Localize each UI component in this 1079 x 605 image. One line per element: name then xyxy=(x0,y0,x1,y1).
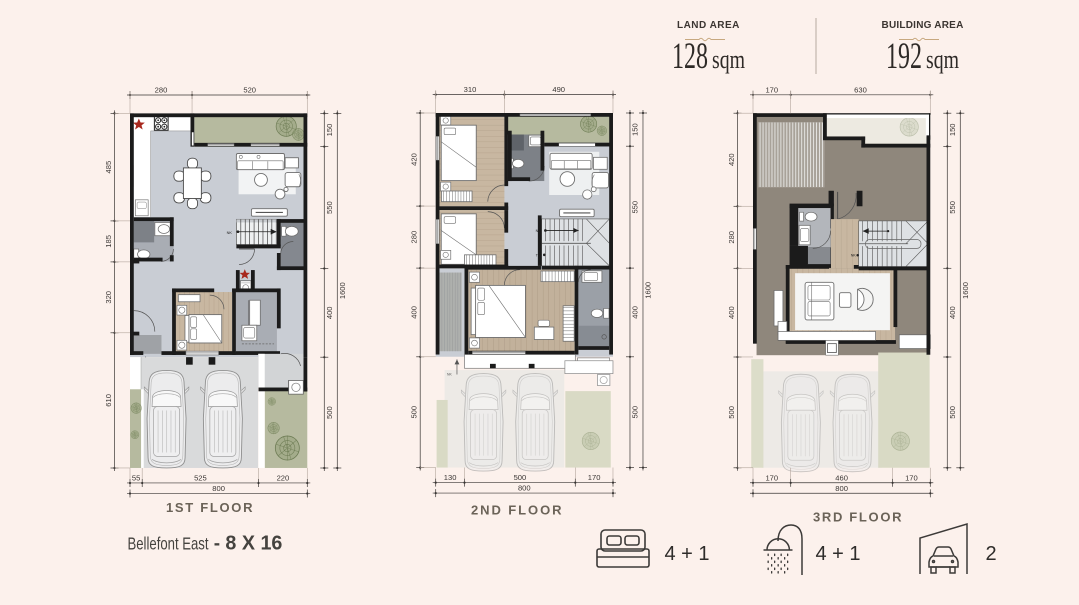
svg-text:3RD FLOOR: 3RD FLOOR xyxy=(813,510,903,525)
svg-text:550: 550 xyxy=(325,201,334,214)
svg-text:460: 460 xyxy=(835,473,848,482)
svg-text:310: 310 xyxy=(464,85,477,94)
svg-text:220: 220 xyxy=(277,474,290,483)
svg-text:170: 170 xyxy=(905,473,918,482)
svg-text:2ND FLOOR: 2ND FLOOR xyxy=(471,503,563,518)
svg-text:800: 800 xyxy=(835,484,848,493)
svg-text:2: 2 xyxy=(985,543,996,565)
svg-text:130: 130 xyxy=(444,473,457,482)
svg-text:610: 610 xyxy=(104,394,113,407)
svg-text:500: 500 xyxy=(948,406,957,419)
svg-text:280: 280 xyxy=(410,231,419,244)
svg-text:BUILDING AREA: BUILDING AREA xyxy=(882,20,965,31)
svg-text:4 + 1: 4 + 1 xyxy=(815,543,860,565)
svg-text:NK: NK xyxy=(851,253,857,257)
svg-text:1ST FLOOR: 1ST FLOOR xyxy=(166,500,254,515)
svg-text:490: 490 xyxy=(552,85,565,94)
svg-text:485: 485 xyxy=(104,161,113,174)
svg-text:1600: 1600 xyxy=(644,282,653,299)
svg-text:NK: NK xyxy=(227,231,233,235)
svg-text:800: 800 xyxy=(212,484,225,493)
svg-text:sqm: sqm xyxy=(926,45,959,74)
svg-text:128: 128 xyxy=(672,36,708,77)
svg-text:280: 280 xyxy=(727,231,736,244)
svg-text:170: 170 xyxy=(765,85,778,94)
svg-text:4 + 1: 4 + 1 xyxy=(664,543,709,565)
svg-text:420: 420 xyxy=(410,153,419,166)
svg-text:500: 500 xyxy=(631,406,640,419)
svg-text:420: 420 xyxy=(727,153,736,166)
svg-text:500: 500 xyxy=(514,473,527,482)
svg-text:525: 525 xyxy=(194,474,207,483)
svg-text:320: 320 xyxy=(104,291,113,304)
svg-text:1600: 1600 xyxy=(961,282,970,299)
svg-text:1600: 1600 xyxy=(338,282,347,299)
svg-text:Bellefont East - 8 X 16: Bellefont East - 8 X 16 xyxy=(128,533,283,555)
svg-text:500: 500 xyxy=(727,406,736,419)
svg-text:800: 800 xyxy=(518,484,531,493)
svg-text:185: 185 xyxy=(104,235,113,248)
svg-text:170: 170 xyxy=(588,473,601,482)
svg-text:550: 550 xyxy=(631,201,640,214)
svg-text:192: 192 xyxy=(886,36,922,77)
svg-text:400: 400 xyxy=(410,306,419,319)
svg-text:NK: NK xyxy=(447,373,452,377)
svg-text:520: 520 xyxy=(243,86,256,95)
svg-text:400: 400 xyxy=(325,306,334,319)
svg-text:150: 150 xyxy=(631,123,640,136)
svg-text:500: 500 xyxy=(410,406,419,419)
svg-text:280: 280 xyxy=(155,86,168,95)
svg-text:LAND AREA: LAND AREA xyxy=(677,20,741,31)
svg-text:150: 150 xyxy=(948,123,957,136)
svg-text:550: 550 xyxy=(948,201,957,214)
svg-text:sqm: sqm xyxy=(712,45,745,74)
svg-text:630: 630 xyxy=(854,85,867,94)
svg-text:400: 400 xyxy=(948,306,957,319)
svg-text:500: 500 xyxy=(325,406,334,419)
svg-text:55: 55 xyxy=(132,474,140,483)
svg-text:150: 150 xyxy=(325,124,334,137)
svg-text:400: 400 xyxy=(727,306,736,319)
svg-text:170: 170 xyxy=(765,473,778,482)
svg-text:400: 400 xyxy=(631,306,640,319)
